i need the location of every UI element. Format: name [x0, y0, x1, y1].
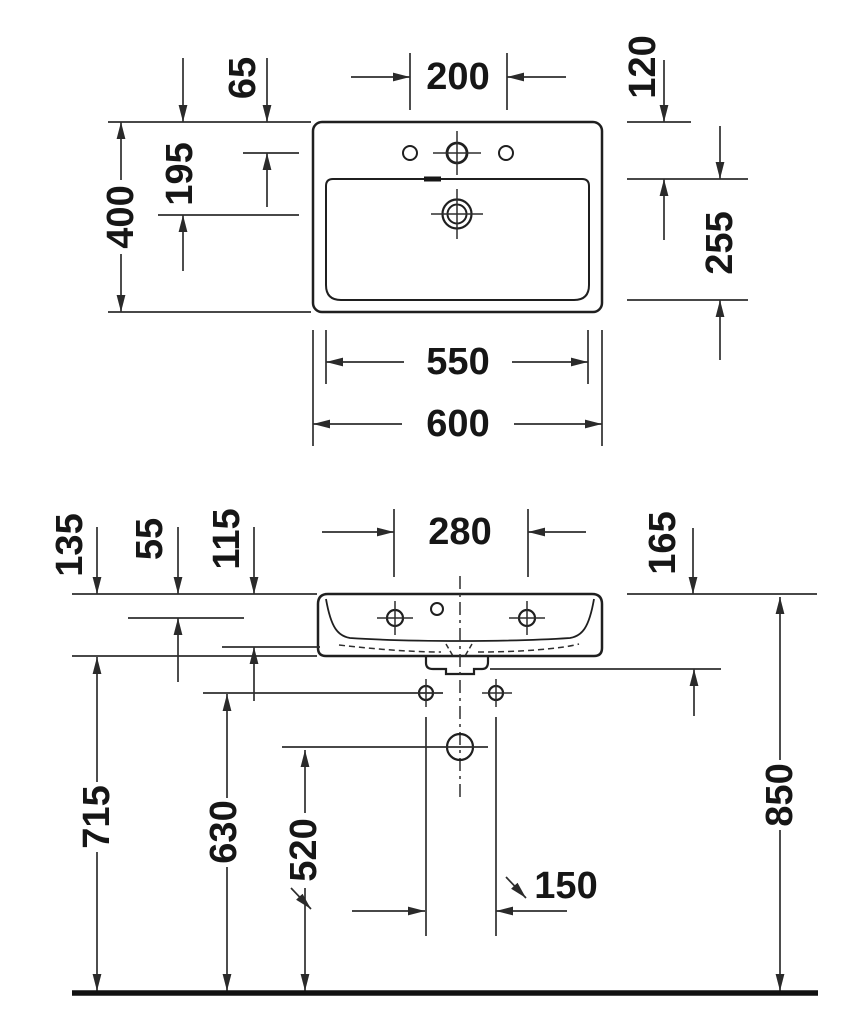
dim-label-200: 200 — [426, 56, 489, 98]
drain-trap-outline — [426, 656, 488, 674]
front-view-extension-lines — [72, 509, 817, 936]
dim-label-165: 165 — [642, 511, 684, 574]
dim-basin-inner-depth: 255 — [699, 126, 741, 360]
dim-label-600: 600 — [426, 403, 489, 445]
dim-label-55: 55 — [129, 518, 171, 560]
dim-label-135: 135 — [49, 513, 91, 576]
dim-rim-to-tap-line-front: 55 — [129, 518, 178, 682]
dim-floor-to-body-bottom: 715 — [76, 657, 118, 991]
top-view-extension-lines — [108, 53, 748, 446]
dim-label-195: 195 — [159, 142, 201, 205]
dim-floor-to-drain: 520 — [283, 750, 325, 991]
dim-bolt-spacing: 150 — [352, 865, 598, 911]
fixing-hole-left-icon — [377, 601, 413, 635]
dim-floor-to-bolts: 630 — [203, 694, 245, 991]
dim-label-115: 115 — [206, 508, 248, 569]
dim-basin-inner-bottom: 115 — [206, 508, 254, 701]
dim-label-400: 400 — [100, 185, 142, 248]
washbasin-technical-drawing: 200 400 195 65 120 2 — [0, 0, 853, 1024]
drawing-canvas: 200 400 195 65 120 2 — [0, 0, 853, 1024]
wall-bolt-right-icon — [482, 679, 512, 707]
dim-label-255: 255 — [699, 211, 741, 274]
dim-label-550: 550 — [426, 341, 489, 383]
overflow-hole-icon — [431, 603, 443, 615]
dim-rim-to-outlet: 165 — [642, 511, 694, 716]
hidden-basin-bottom-line — [339, 644, 579, 652]
drain-hole-icon — [431, 189, 483, 239]
dim-label-280: 280 — [428, 511, 491, 553]
dim-label-630: 630 — [203, 800, 245, 863]
tap-hole-center-icon — [433, 131, 481, 175]
dim-tap-hole-spacing: 200 — [351, 56, 566, 98]
dim-basin-inner-width: 550 — [326, 341, 588, 383]
dim-overall-width: 600 — [313, 403, 602, 445]
dim-floor-to-rim: 850 — [759, 597, 801, 991]
dim-label-120: 120 — [622, 35, 664, 98]
dim-rim-to-tap-line-top: 65 — [222, 57, 267, 207]
dim-body-height: 135 — [49, 513, 97, 594]
hidden-drain-funnel-line — [446, 644, 472, 656]
dim-label-850: 850 — [759, 763, 801, 826]
dim-overall-depth: 400 — [100, 122, 142, 312]
dim-label-520: 520 — [283, 818, 325, 881]
dim-label-65: 65 — [222, 57, 264, 99]
dim-label-715: 715 — [76, 785, 118, 848]
tap-hole-right-icon — [499, 146, 513, 160]
dim-rim-to-basin-edge: 120 — [622, 35, 664, 240]
front-view: 280 135 55 115 165 715 — [49, 508, 818, 993]
top-view: 200 400 195 65 120 2 — [100, 35, 748, 446]
tap-hole-left-icon — [403, 146, 417, 160]
dim-rim-to-drain: 195 — [159, 58, 201, 271]
fixing-hole-right-icon — [509, 601, 545, 635]
dim-label-150: 150 — [534, 865, 597, 907]
dim-fixing-hole-spacing: 280 — [322, 511, 586, 553]
